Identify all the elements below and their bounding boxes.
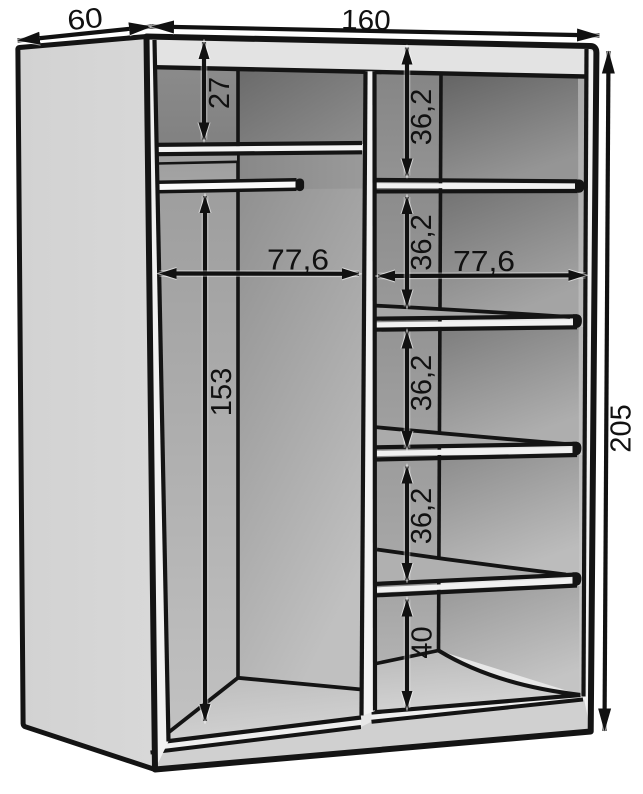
svg-text:205: 205 [606, 404, 638, 452]
svg-text:160: 160 [341, 4, 391, 36]
svg-text:27: 27 [204, 77, 236, 109]
svg-text:36,2: 36,2 [406, 214, 438, 270]
svg-text:153: 153 [206, 368, 238, 416]
svg-text:77,6: 77,6 [453, 246, 515, 278]
svg-text:36,2: 36,2 [406, 488, 438, 544]
svg-text:77,6: 77,6 [267, 245, 329, 277]
svg-text:40: 40 [407, 626, 439, 658]
svg-text:36,2: 36,2 [406, 355, 438, 411]
svg-text:36,2: 36,2 [406, 89, 438, 145]
svg-text:60: 60 [66, 2, 105, 37]
